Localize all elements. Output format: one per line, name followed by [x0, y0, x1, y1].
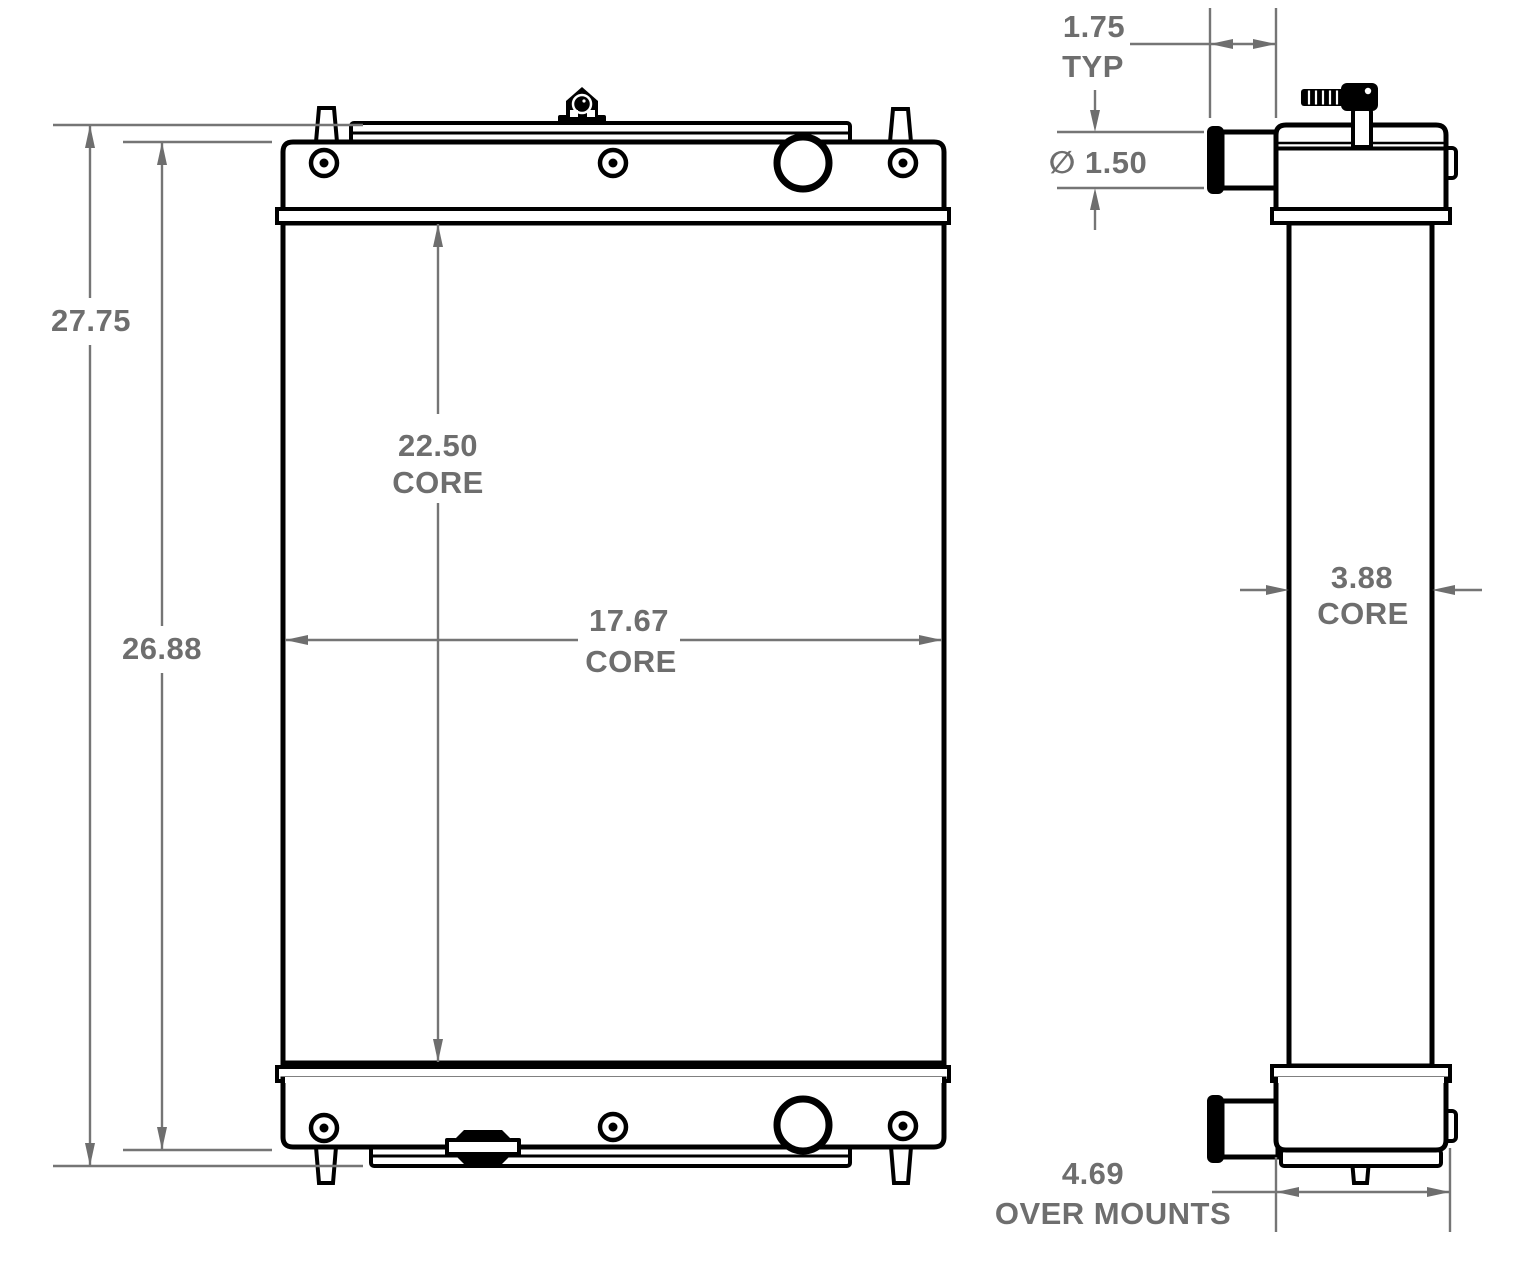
side-view: [1207, 83, 1456, 1183]
dim-label-core-depth-value: 3.88: [1331, 560, 1393, 595]
dim-label-core-height-value: 22.50: [398, 428, 478, 463]
front-top-band: [277, 209, 949, 223]
hose-barb-fitting-icon: [1301, 83, 1378, 111]
dim-label-height-over-tanks: 26.88: [122, 631, 202, 666]
dim-core-depth: 3.88 CORE: [1240, 560, 1482, 631]
dim-label-core-depth-suffix: CORE: [1317, 596, 1409, 631]
inlet-pipe-end-cap: [1207, 126, 1224, 194]
dim-label-overall-height: 27.75: [51, 303, 131, 338]
outlet-pipe-end-cap: [1207, 1095, 1224, 1163]
side-core: [1289, 223, 1432, 1066]
dim-label-over-mounts-value: 4.69: [1062, 1156, 1124, 1191]
filler-cap-bracket-icon: [558, 87, 606, 124]
bottom-mounting-pin-right-icon: [891, 1147, 911, 1183]
dim-label-core-width-suffix: CORE: [585, 644, 677, 679]
dim-label-core-width-value: 17.67: [589, 603, 669, 638]
overflow-stem: [1353, 108, 1371, 147]
filler-opening-icon: [777, 137, 829, 189]
dim-height-over-tanks: 26.88: [122, 142, 202, 1150]
dim-overall-height: 27.75: [51, 125, 131, 1166]
dim-pipe-diameter: ∅ 1.50: [1049, 90, 1204, 230]
dim-label-pipe-diameter: ∅ 1.50: [1049, 145, 1148, 180]
drawing-canvas: 27.75 26.88 22.50 CORE 17.67 CORE: [0, 0, 1517, 1265]
side-bottom-tank: [1276, 1079, 1446, 1150]
dim-label-core-height-suffix: CORE: [392, 465, 484, 500]
inlet-pipe: [1222, 132, 1278, 188]
top-mounting-pin-right-icon: [890, 109, 911, 142]
dim-label-over-mounts-suffix: OVER MOUNTS: [995, 1196, 1231, 1231]
outlet-opening-icon: [777, 1099, 829, 1151]
front-core: [283, 223, 944, 1063]
dim-label-pipe-protrusion-suffix: TYP: [1062, 49, 1124, 84]
dim-label-pipe-protrusion-value: 1.75: [1063, 9, 1125, 44]
side-top-band: [1272, 209, 1450, 223]
outlet-pipe: [1222, 1101, 1278, 1157]
radiator-technical-drawing: 27.75 26.88 22.50 CORE 17.67 CORE: [0, 0, 1517, 1265]
